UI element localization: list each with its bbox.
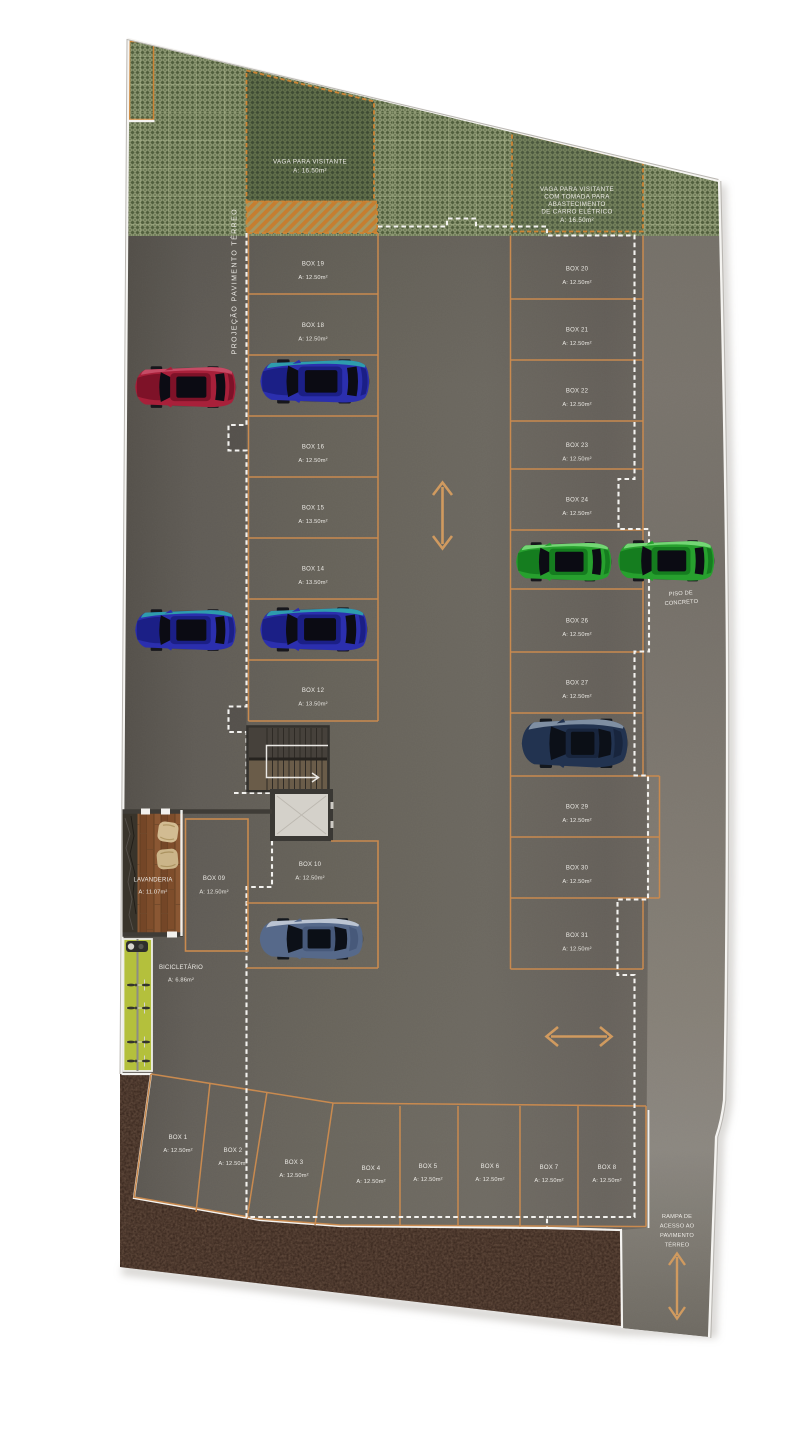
svg-text:ACESSO AO: ACESSO AO	[660, 1224, 695, 1230]
svg-text:BOX 4: BOX 4	[362, 1166, 381, 1172]
svg-text:A: 12.50m²: A: 12.50m²	[534, 1178, 563, 1184]
svg-text:BOX 2: BOX 2	[224, 1148, 243, 1154]
svg-text:BOX 16: BOX 16	[302, 445, 325, 451]
svg-text:A: 12.50m²: A: 12.50m²	[475, 1177, 504, 1183]
svg-text:A: 13.50m²: A: 13.50m²	[298, 702, 327, 708]
svg-text:A: 12.50m²: A: 12.50m²	[413, 1177, 442, 1183]
svg-text:A: 12.50m²: A: 12.50m²	[562, 947, 591, 953]
svg-text:TÉRREO: TÉRREO	[665, 1242, 690, 1249]
svg-text:A: 12.50m²: A: 12.50m²	[562, 511, 591, 517]
svg-text:A: 12.50m²: A: 12.50m²	[298, 458, 327, 464]
svg-text:BOX 6: BOX 6	[481, 1164, 500, 1170]
svg-text:BOX 30: BOX 30	[566, 866, 589, 872]
svg-text:VAGA PARA VISITANTE: VAGA PARA VISITANTE	[540, 186, 614, 193]
svg-text:A: 12.50m²: A: 12.50m²	[295, 876, 324, 882]
svg-text:PROJEÇÃO PAVIMENTO TÉRREO: PROJEÇÃO PAVIMENTO TÉRREO	[230, 208, 239, 355]
svg-text:BOX 09: BOX 09	[203, 876, 226, 882]
svg-text:BOX 27: BOX 27	[566, 681, 589, 687]
svg-text:A: 12.50m²: A: 12.50m²	[298, 275, 327, 281]
svg-text:BOX 24: BOX 24	[566, 498, 589, 504]
svg-text:BOX 29: BOX 29	[566, 805, 589, 811]
svg-text:BOX 18: BOX 18	[302, 323, 325, 329]
svg-text:DE CARRO ELÉTRICO: DE CARRO ELÉTRICO	[541, 209, 612, 216]
svg-text:A: 12.50m²: A: 12.50m²	[562, 280, 591, 286]
svg-text:RAMPA DE: RAMPA DE	[662, 1214, 692, 1220]
svg-text:A: 13.50m²: A: 13.50m²	[298, 519, 327, 525]
svg-text:BICICLETÁRIO: BICICLETÁRIO	[159, 964, 203, 971]
svg-text:COM TOMADA PARA: COM TOMADA PARA	[544, 194, 610, 201]
svg-text:BOX 26: BOX 26	[566, 619, 589, 625]
svg-text:A: 12.50m²: A: 12.50m²	[562, 341, 591, 347]
svg-text:BOX 19: BOX 19	[302, 262, 325, 268]
svg-text:A: 12.50m²: A: 12.50m²	[356, 1179, 385, 1185]
svg-text:BOX 14: BOX 14	[302, 567, 325, 573]
svg-text:BOX 10: BOX 10	[299, 862, 322, 868]
svg-text:A: 11.07m²: A: 11.07m²	[139, 890, 168, 896]
svg-text:BOX 22: BOX 22	[566, 389, 589, 395]
svg-text:A: 12.50m²: A: 12.50m²	[592, 1178, 621, 1184]
svg-text:A: 12.50m²: A: 12.50m²	[562, 632, 591, 638]
svg-text:BOX 5: BOX 5	[419, 1164, 438, 1170]
svg-text:BOX 21: BOX 21	[566, 328, 589, 334]
svg-text:A: 6.86m²: A: 6.86m²	[168, 978, 194, 984]
svg-text:A: 12.50m²: A: 12.50m²	[562, 694, 591, 700]
svg-text:BOX 15: BOX 15	[302, 506, 325, 512]
svg-text:A: 12.50m²: A: 12.50m²	[562, 402, 591, 408]
svg-text:BOX 23: BOX 23	[566, 443, 589, 449]
svg-text:VAGA PARA VISITANTE: VAGA PARA VISITANTE	[273, 159, 347, 166]
svg-text:ABASTECIMENTO: ABASTECIMENTO	[548, 201, 605, 208]
svg-text:BOX 12: BOX 12	[302, 688, 325, 694]
svg-text:A: 12.50m²: A: 12.50m²	[199, 890, 228, 896]
svg-text:A: 12.50m²: A: 12.50m²	[562, 879, 591, 885]
svg-text:A: 16.50m²: A: 16.50m²	[560, 217, 594, 224]
svg-text:BOX 8: BOX 8	[598, 1165, 617, 1171]
svg-text:BOX 7: BOX 7	[540, 1165, 559, 1171]
svg-text:LAVANDERIA: LAVANDERIA	[133, 878, 172, 884]
svg-text:BOX 1: BOX 1	[169, 1135, 188, 1141]
svg-text:A: 12.50m²: A: 12.50m²	[562, 457, 591, 463]
svg-text:A: 12.50m²: A: 12.50m²	[163, 1148, 192, 1154]
svg-text:BOX 31: BOX 31	[566, 933, 589, 939]
svg-text:BOX 3: BOX 3	[285, 1160, 304, 1166]
svg-text:A: 16.50m²: A: 16.50m²	[293, 168, 327, 175]
svg-text:A: 12.50m²: A: 12.50m²	[562, 818, 591, 824]
svg-text:A: 12.50m²: A: 12.50m²	[218, 1161, 247, 1167]
svg-text:BOX 20: BOX 20	[566, 267, 589, 273]
svg-text:A: 13.50m²: A: 13.50m²	[298, 580, 327, 586]
svg-text:PAVIMENTO: PAVIMENTO	[660, 1233, 694, 1239]
svg-text:A: 12.50m²: A: 12.50m²	[279, 1173, 308, 1179]
svg-text:A: 12.50m²: A: 12.50m²	[298, 337, 327, 343]
